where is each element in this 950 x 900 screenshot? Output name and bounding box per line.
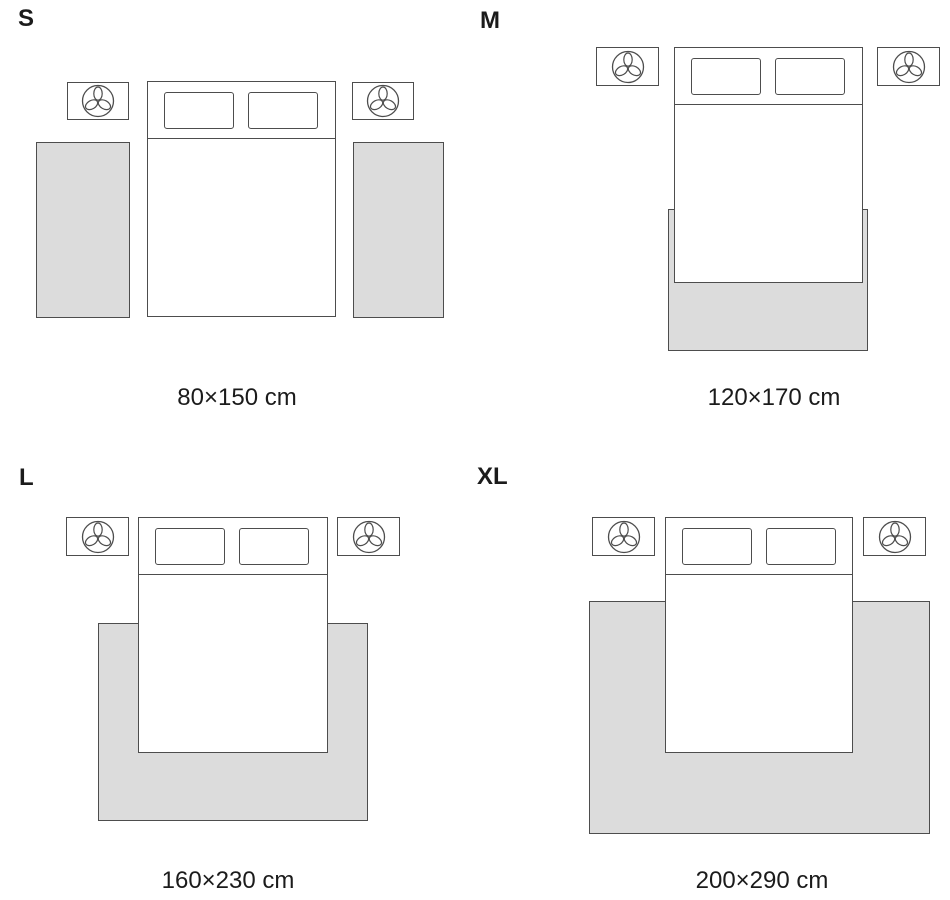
size-label-s: S: [18, 7, 34, 31]
size-label-m: M: [480, 9, 500, 33]
plant-icon: [80, 83, 116, 119]
size-label-xl: XL: [477, 465, 508, 489]
plant-icon: [610, 49, 646, 85]
plant-icon: [351, 519, 387, 555]
plant-icon: [80, 519, 116, 555]
size-caption-xl: 200×290 cm: [696, 869, 829, 893]
rug-runner-left: [36, 142, 130, 318]
bed-headboard: [666, 518, 852, 575]
size-label-l: L: [19, 466, 34, 490]
pillow-right: [239, 528, 309, 565]
bed: [665, 517, 853, 753]
nightstand-right: [352, 82, 414, 120]
rug-size-guide-diagram: S 80×150 cm M: [0, 0, 950, 900]
size-caption-m: 120×170 cm: [708, 386, 841, 410]
pillow-left: [155, 528, 225, 565]
plant-icon: [606, 519, 642, 555]
pillow-right: [775, 58, 845, 95]
plant-icon: [891, 49, 927, 85]
nightstand-right: [863, 517, 926, 556]
nightstand-right: [877, 47, 940, 86]
size-caption-l: 160×230 cm: [162, 869, 295, 893]
bed: [138, 517, 328, 753]
pillow-left: [682, 528, 752, 565]
nightstand-left: [596, 47, 659, 86]
bed-headboard: [148, 82, 335, 139]
nightstand-left: [592, 517, 655, 556]
rug-runner-right: [353, 142, 444, 318]
bed: [674, 47, 863, 283]
panel-size-s: S 80×150 cm: [0, 0, 475, 450]
nightstand-left: [67, 82, 129, 120]
size-caption-s: 80×150 cm: [177, 386, 296, 410]
panel-size-l: L 160×230 cm: [0, 450, 475, 900]
pillow-right: [766, 528, 836, 565]
bed-headboard: [139, 518, 327, 575]
pillow-right: [248, 92, 318, 129]
pillow-left: [691, 58, 761, 95]
panel-size-m: M 120×170 cm: [475, 0, 950, 450]
nightstand-left: [66, 517, 129, 556]
nightstand-right: [337, 517, 400, 556]
plant-icon: [877, 519, 913, 555]
pillow-left: [164, 92, 234, 129]
bed: [147, 81, 336, 317]
panel-size-xl: XL 200×290 cm: [475, 450, 950, 900]
bed-headboard: [675, 48, 862, 105]
plant-icon: [365, 83, 401, 119]
